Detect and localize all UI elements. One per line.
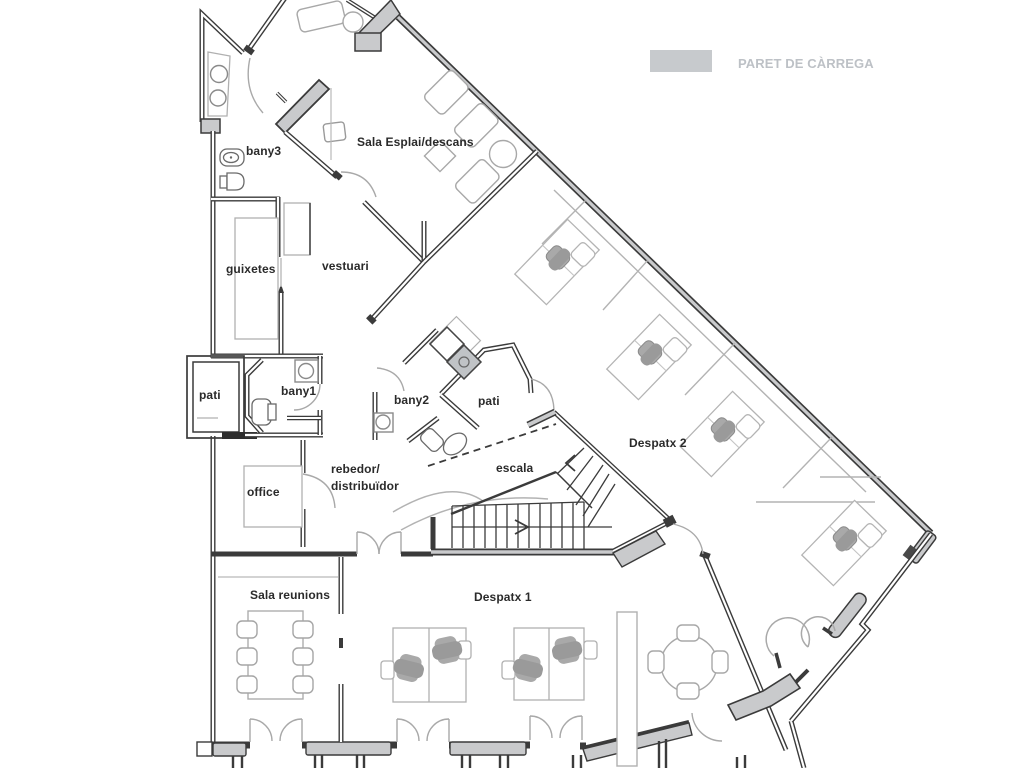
- svg-text:Sala Esplai/descans: Sala Esplai/descans: [357, 135, 474, 149]
- svg-text:Despatx 2: Despatx 2: [629, 436, 687, 450]
- svg-text:guixetes: guixetes: [226, 262, 276, 276]
- svg-text:bany2: bany2: [394, 393, 429, 407]
- svg-text:pati: pati: [478, 394, 500, 408]
- svg-text:escala: escala: [496, 461, 534, 475]
- svg-text:office: office: [247, 485, 280, 499]
- svg-text:distribuïdor: distribuïdor: [331, 479, 399, 493]
- svg-text:pati: pati: [199, 388, 221, 402]
- svg-text:PARET DE CÀRREGA: PARET DE CÀRREGA: [738, 56, 874, 71]
- svg-text:vestuari: vestuari: [322, 259, 369, 273]
- svg-text:Despatx 1: Despatx 1: [474, 590, 532, 604]
- svg-text:bany1: bany1: [281, 384, 316, 398]
- svg-text:bany3: bany3: [246, 144, 281, 158]
- svg-text:rebedor/: rebedor/: [331, 462, 380, 476]
- svg-text:Sala reunions: Sala reunions: [250, 588, 330, 602]
